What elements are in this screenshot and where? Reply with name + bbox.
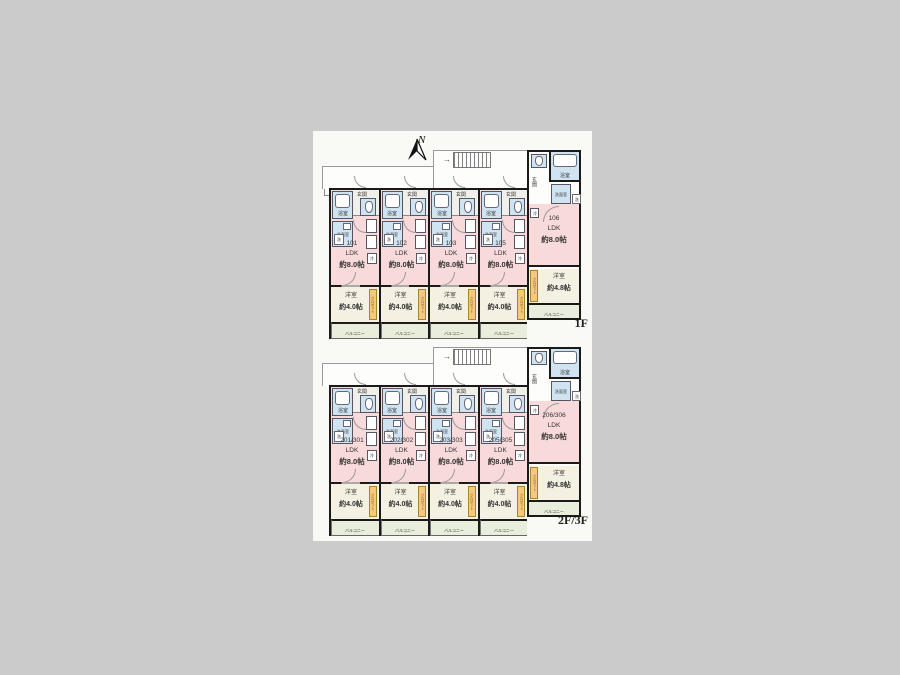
bedroom-size: 約4.8帖 — [547, 283, 571, 294]
bathroom: 浴室 — [332, 388, 353, 416]
washroom-label: 洗面室 — [552, 190, 570, 198]
shared-corridor — [322, 166, 434, 189]
ldk-text: LDK — [548, 421, 561, 431]
washroom: 洗面室 — [551, 381, 571, 401]
bathroom-label: 浴室 — [383, 406, 402, 414]
ldk-size: 約8.0帖 — [541, 431, 566, 442]
bedroom-text: 洋室 — [394, 292, 406, 302]
toilet-icon — [415, 201, 423, 213]
ldk-room: 冷 106 LDK 約8.0帖 — [529, 204, 579, 267]
apartment-unit: 玄関 浴室 洗面室 洗 冷 201/301 LDK — [329, 387, 379, 536]
entrance-label: 玄関 — [452, 190, 470, 198]
bedroom-label: 洋室 約4.8帖 — [539, 470, 579, 491]
bedroom: 洋室 約4.0帖 クロゼット — [381, 484, 429, 519]
door-arc-icon — [392, 469, 406, 483]
kitchen-sink-icon — [415, 416, 426, 430]
toilet-room — [531, 351, 547, 365]
unit-number: 202/302 — [390, 436, 414, 446]
balcony: バルコニー — [430, 322, 478, 339]
bathroom-label: 浴室 — [432, 406, 451, 414]
ldk-text: LDK — [445, 249, 458, 259]
floor-plan: → 玄関 浴室 洗面室 洗 冷 — [322, 150, 584, 340]
bedroom-text: 洋室 — [553, 273, 565, 283]
bathroom: 浴室 — [382, 388, 403, 416]
sink-icon — [442, 420, 450, 427]
entrance-label: 玄関 — [353, 190, 371, 198]
ldk-size: 約8.0帖 — [339, 259, 364, 270]
sink-icon — [393, 420, 401, 427]
entrance-label: 玄関 — [403, 190, 421, 198]
toilet-icon — [535, 353, 543, 363]
ldk-label: 201/301 LDK 約8.0帖 — [331, 436, 373, 467]
closet: クロゼット — [530, 467, 538, 499]
balcony-label: バルコニー — [529, 507, 579, 515]
bedroom-text: 洋室 — [553, 470, 565, 480]
balcony-label: バルコニー — [431, 329, 478, 337]
bedroom: 洋室 約4.0帖 クロゼット — [331, 484, 379, 519]
bedroom-text: 洋室 — [444, 292, 456, 302]
bedroom-label: 洋室 約4.0帖 — [480, 292, 520, 313]
toilet-icon — [514, 398, 522, 410]
bedroom-text: 洋室 — [345, 489, 357, 499]
toilet-room — [509, 198, 525, 216]
apartment-unit: 玄関 浴室 洗面室 洗 冷 102 LDK 約8 — [379, 190, 429, 339]
closet: クロゼット — [468, 289, 476, 320]
balcony: バルコニー — [381, 322, 429, 339]
ldk-text: LDK — [346, 446, 359, 456]
toilet-icon — [365, 201, 373, 213]
apartment-unit: 玄関 浴室 洗面室 洗 冷 205/305 LDK — [478, 387, 528, 536]
sink-icon — [343, 223, 351, 230]
door-arc-icon — [491, 469, 505, 483]
door-arc-icon — [353, 220, 366, 233]
toilet-room — [410, 198, 426, 216]
entrance-label: 玄関 — [529, 170, 540, 194]
bedroom-label: 洋室 約4.0帖 — [381, 292, 421, 313]
ldk-room: 玄関 浴室 洗面室 洗 冷 205/305 LDK — [480, 387, 528, 484]
toilet-room — [459, 395, 475, 413]
corner-apartment-unit: 玄関 浴室 洗面室 洗 冷 106 LDK 約8.0帖 クロゼット 洋室 約4.… — [527, 150, 581, 320]
toilet-room — [531, 154, 547, 168]
balcony-label: バルコニー — [481, 329, 528, 337]
stairs-direction-arrow-icon: → — [443, 155, 451, 164]
page-background: N → 玄関 浴室 洗面室 洗 — [0, 0, 900, 675]
ldk-text: LDK — [494, 446, 507, 456]
ldk-size: 約8.0帖 — [339, 456, 364, 467]
ldk-room: 玄関 浴室 洗面室 洗 冷 105 LDK 約8 — [480, 190, 528, 287]
ldk-size: 約8.0帖 — [389, 259, 414, 270]
apartment-unit: 玄関 浴室 洗面室 洗 冷 105 LDK 約8 — [478, 190, 528, 339]
ldk-label: 202/302 LDK 約8.0帖 — [381, 436, 423, 467]
bathroom-label: 浴室 — [551, 171, 579, 179]
ldk-label: 205/305 LDK 約8.0帖 — [480, 436, 522, 467]
bathtub-icon — [553, 154, 577, 167]
bathroom: 浴室 — [481, 191, 502, 219]
toilet-icon — [514, 201, 522, 213]
door-arc-icon — [452, 417, 465, 430]
balcony-label: バルコニー — [332, 526, 379, 534]
bathroom: 浴室 — [549, 152, 579, 182]
balcony-label: バルコニー — [332, 329, 379, 337]
toilet-room — [410, 395, 426, 413]
door-arc-icon — [353, 417, 366, 430]
bathtub-icon — [434, 194, 449, 208]
bedroom: 洋室 約4.0帖 クロゼット — [480, 287, 528, 322]
bathtub-icon — [385, 194, 400, 208]
unit-number: 102 — [396, 239, 407, 249]
bedroom-size: 約4.0帖 — [438, 302, 462, 313]
bedroom-size: 約4.0帖 — [438, 499, 462, 510]
bathroom-label: 浴室 — [333, 406, 352, 414]
entrance-label: 玄関 — [529, 367, 540, 391]
unit-number: 101 — [347, 239, 358, 249]
ldk-label: 106 LDK 約8.0帖 — [531, 214, 577, 245]
unit-number: 106 — [549, 214, 560, 224]
bedroom-size: 約4.0帖 — [389, 302, 413, 313]
ldk-size: 約8.0帖 — [438, 456, 463, 467]
sink-icon — [492, 420, 500, 427]
bedroom-text: 洋室 — [345, 292, 357, 302]
bathroom: 浴室 — [481, 388, 502, 416]
stairs: → — [453, 152, 491, 168]
bathroom-label: 浴室 — [432, 209, 451, 217]
toilet-room — [459, 198, 475, 216]
ldk-text: LDK — [494, 249, 507, 259]
entrance-label: 玄関 — [353, 387, 371, 395]
ldk-text: LDK — [445, 446, 458, 456]
bedroom-text: 洋室 — [444, 489, 456, 499]
entrance-label: 玄関 — [502, 190, 520, 198]
bedroom-label: 洋室 約4.0帖 — [381, 489, 421, 510]
bathtub-icon — [553, 351, 577, 364]
unit-number: 103 — [446, 239, 457, 249]
toilet-icon — [464, 398, 472, 410]
door-arc-icon — [342, 272, 356, 286]
bathroom-label: 浴室 — [551, 368, 579, 376]
bathroom-label: 浴室 — [482, 406, 501, 414]
ldk-size: 約8.0帖 — [488, 259, 513, 270]
bedroom-size: 約4.0帖 — [389, 499, 413, 510]
ldk-room: 玄関 浴室 洗面室 洗 冷 103 LDK 約8 — [430, 190, 478, 287]
entrance-label: 玄関 — [403, 387, 421, 395]
door-arc-icon — [441, 272, 455, 286]
bathtub-icon — [335, 391, 350, 405]
door-arc-icon — [403, 417, 416, 430]
ldk-room: 冷 206/306 LDK 約8.0帖 — [529, 401, 579, 464]
ldk-text: LDK — [395, 446, 408, 456]
sink-icon — [442, 223, 450, 230]
bedroom-text: 洋室 — [493, 292, 505, 302]
toilet-room — [509, 395, 525, 413]
door-arc-icon — [502, 220, 515, 233]
balcony: バルコニー — [331, 322, 379, 339]
door-arc-icon — [342, 469, 356, 483]
door-arc-icon — [441, 469, 455, 483]
bathroom: 浴室 — [382, 191, 403, 219]
balcony: バルコニー — [529, 500, 579, 515]
bedroom: 洋室 約4.0帖 クロゼット — [480, 484, 528, 519]
kitchen-sink-icon — [465, 416, 476, 430]
balcony: バルコニー — [331, 519, 379, 536]
ldk-label: 101 LDK 約8.0帖 — [331, 239, 373, 270]
ldk-label: 203/303 LDK 約8.0帖 — [430, 436, 472, 467]
balcony-label: バルコニー — [382, 329, 429, 337]
washing-machine-icon: 洗 — [572, 391, 581, 401]
ldk-label: 102 LDK 約8.0帖 — [381, 239, 423, 270]
bedroom: クロゼット 洋室 約4.8帖 — [529, 466, 579, 500]
ldk-text: LDK — [395, 249, 408, 259]
balcony: バルコニー — [430, 519, 478, 536]
shared-corridor — [322, 363, 434, 386]
bathroom: 浴室 — [431, 388, 452, 416]
kitchen-sink-icon — [465, 219, 476, 233]
corner-apartment-unit: 玄関 浴室 洗面室 洗 冷 206/306 LDK 約8.0帖 クロゼット 洋室… — [527, 347, 581, 517]
sink-icon — [343, 420, 351, 427]
bathtub-icon — [484, 391, 499, 405]
bedroom-label: 洋室 約4.0帖 — [480, 489, 520, 510]
apartment-unit: 玄関 浴室 洗面室 洗 冷 203/303 LDK — [428, 387, 478, 536]
bedroom: クロゼット 洋室 約4.8帖 — [529, 269, 579, 303]
door-arc-icon — [452, 220, 465, 233]
bathroom: 浴室 — [332, 191, 353, 219]
bedroom-size: 約4.8帖 — [547, 480, 571, 491]
ldk-room: 玄関 浴室 洗面室 洗 冷 202/302 LDK — [381, 387, 429, 484]
ldk-text: LDK — [548, 224, 561, 234]
bedroom-size: 約4.0帖 — [488, 499, 512, 510]
bedroom: 洋室 約4.0帖 クロゼット — [331, 287, 379, 322]
bathroom-label: 浴室 — [383, 209, 402, 217]
bathtub-icon — [385, 391, 400, 405]
bathtub-icon — [434, 391, 449, 405]
balcony-label: バルコニー — [481, 526, 528, 534]
bedroom-label: 洋室 約4.0帖 — [430, 292, 470, 313]
closet: クロゼット — [369, 486, 377, 517]
ldk-room: 玄関 浴室 洗面室 洗 冷 101 LDK 約8 — [331, 190, 379, 287]
ldk-size: 約8.0帖 — [488, 456, 513, 467]
ldk-label: 105 LDK 約8.0帖 — [480, 239, 522, 270]
apartment-unit: 玄関 浴室 洗面室 洗 冷 101 LDK 約8 — [329, 190, 379, 339]
bathroom-label: 浴室 — [333, 209, 352, 217]
unit-number: 203/303 — [439, 436, 463, 446]
ldk-room: 玄関 浴室 洗面室 洗 冷 201/301 LDK — [331, 387, 379, 484]
bedroom-label: 洋室 約4.8帖 — [539, 273, 579, 294]
stairs-direction-arrow-icon: → — [443, 352, 451, 361]
toilet-icon — [464, 201, 472, 213]
closet: クロゼット — [468, 486, 476, 517]
bedroom: 洋室 約4.0帖 クロゼット — [381, 287, 429, 322]
ldk-size: 約8.0帖 — [389, 456, 414, 467]
door-arc-icon — [491, 272, 505, 286]
bedroom-text: 洋室 — [493, 489, 505, 499]
washroom-label: 洗面室 — [552, 387, 570, 395]
closet: クロゼット — [530, 270, 538, 302]
bathroom-label: 浴室 — [482, 209, 501, 217]
floor-plan: → 玄関 浴室 洗面室 洗 冷 — [322, 347, 584, 537]
unit-number: 205/305 — [489, 436, 513, 446]
bedroom-label: 洋室 約4.0帖 — [430, 489, 470, 510]
bedroom-text: 洋室 — [394, 489, 406, 499]
apartment-unit: 玄関 浴室 洗面室 洗 冷 103 LDK 約8 — [428, 190, 478, 339]
ldk-size: 約8.0帖 — [541, 234, 566, 245]
units-row: 玄関 浴室 洗面室 洗 冷 201/301 LDK — [329, 385, 529, 536]
kitchen-sink-icon — [514, 416, 525, 430]
apartment-unit: 玄関 浴室 洗面室 洗 冷 202/302 LDK — [379, 387, 429, 536]
entrance-label: 玄関 — [502, 387, 520, 395]
bedroom-size: 約4.0帖 — [488, 302, 512, 313]
ldk-room: 玄関 浴室 洗面室 洗 冷 102 LDK 約8 — [381, 190, 429, 287]
bathtub-icon — [335, 194, 350, 208]
door-arc-icon — [403, 220, 416, 233]
kitchen-sink-icon — [514, 219, 525, 233]
door-arc-icon — [502, 417, 515, 430]
toilet-room — [360, 198, 376, 216]
ldk-text: LDK — [346, 249, 359, 259]
closet: クロゼット — [517, 486, 525, 517]
washroom: 洗面室 — [551, 184, 571, 204]
kitchen-sink-icon — [366, 416, 377, 430]
kitchen-sink-icon — [366, 219, 377, 233]
unit-number: 201/301 — [340, 436, 364, 446]
closet: クロゼット — [418, 486, 426, 517]
bedroom: 洋室 約4.0帖 クロゼット — [430, 484, 478, 519]
balcony: バルコニー — [480, 519, 528, 536]
floor-plan-sheet: N → 玄関 浴室 洗面室 洗 — [313, 131, 592, 541]
balcony-label: バルコニー — [431, 526, 478, 534]
ldk-label: 206/306 LDK 約8.0帖 — [531, 411, 577, 442]
closet: クロゼット — [369, 289, 377, 320]
bedroom-size: 約4.0帖 — [339, 302, 363, 313]
bathroom: 浴室 — [549, 349, 579, 379]
toilet-icon — [365, 398, 373, 410]
washing-machine-icon: 洗 — [572, 194, 581, 204]
entrance-label: 玄関 — [452, 387, 470, 395]
sink-icon — [492, 223, 500, 230]
bathroom: 浴室 — [431, 191, 452, 219]
balcony-label: バルコニー — [529, 310, 579, 318]
stairs: → — [453, 349, 491, 365]
toilet-room — [360, 395, 376, 413]
door-arc-icon — [392, 272, 406, 286]
toilet-icon — [415, 398, 423, 410]
balcony: バルコニー — [480, 322, 528, 339]
ldk-size: 約8.0帖 — [438, 259, 463, 270]
unit-number: 105 — [495, 239, 506, 249]
closet: クロゼット — [517, 289, 525, 320]
bathtub-icon — [484, 194, 499, 208]
ldk-room: 玄関 浴室 洗面室 洗 冷 203/303 LDK — [430, 387, 478, 484]
units-row: 玄関 浴室 洗面室 洗 冷 101 LDK 約8 — [329, 188, 529, 339]
bedroom-label: 洋室 約4.0帖 — [331, 489, 371, 510]
toilet-icon — [535, 156, 543, 166]
sink-icon — [393, 223, 401, 230]
balcony: バルコニー — [381, 519, 429, 536]
balcony: バルコニー — [529, 303, 579, 318]
bedroom-size: 約4.0帖 — [339, 499, 363, 510]
closet: クロゼット — [418, 289, 426, 320]
bedroom: 洋室 約4.0帖 クロゼット — [430, 287, 478, 322]
balcony-label: バルコニー — [382, 526, 429, 534]
bedroom-label: 洋室 約4.0帖 — [331, 292, 371, 313]
ldk-label: 103 LDK 約8.0帖 — [430, 239, 472, 270]
unit-number: 206/306 — [542, 411, 566, 421]
kitchen-sink-icon — [415, 219, 426, 233]
